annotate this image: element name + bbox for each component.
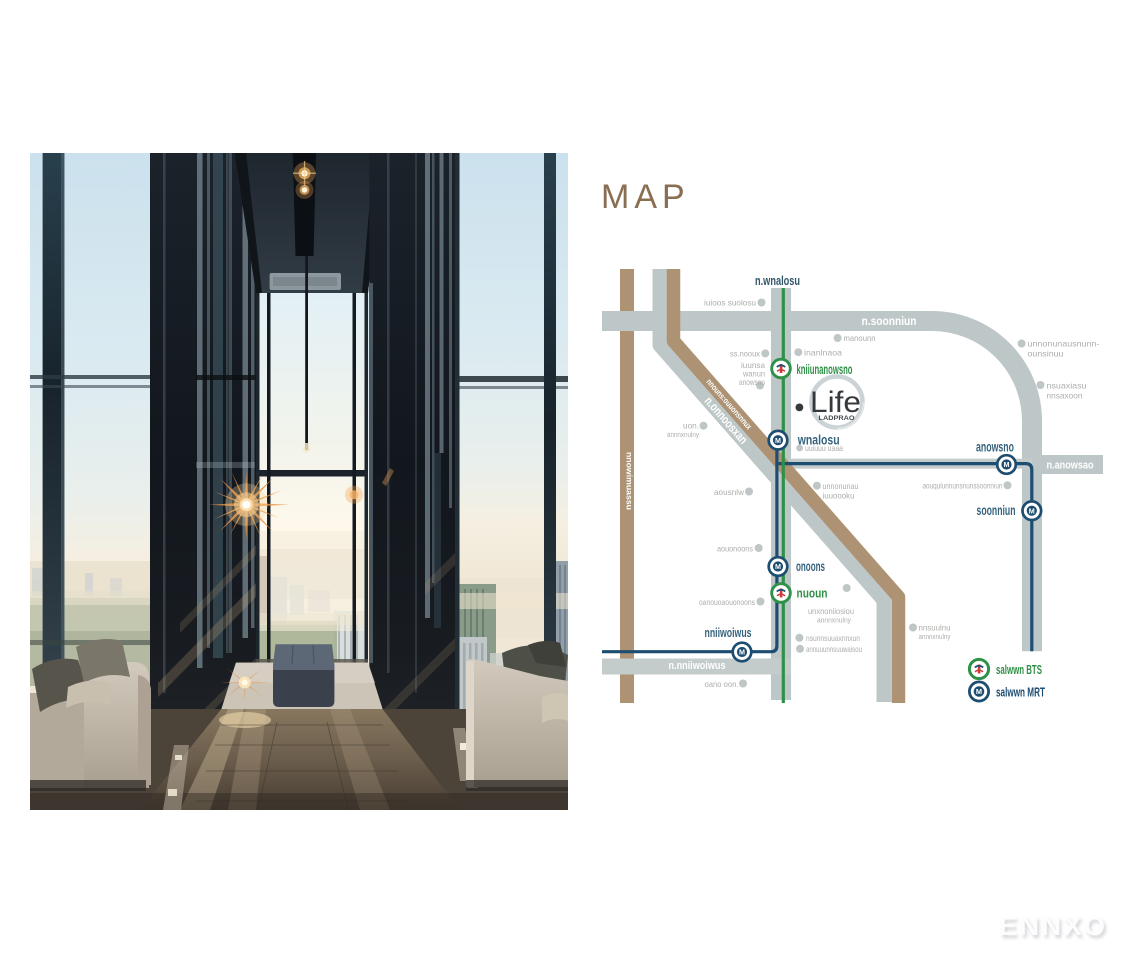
svg-text:annnxnulny: annnxnulny (817, 616, 851, 625)
svg-text:inanlnaoa: inanlnaoa (804, 348, 842, 358)
svg-text:aousnlw: aousnlw (714, 487, 745, 497)
svg-text:n.soonniun: n.soonniun (862, 314, 917, 328)
svg-text:aouonoons: aouonoons (717, 544, 753, 554)
svg-text:oanouoaouonoons: oanouoaouonoons (699, 597, 755, 607)
svg-text:salwwn BTS: salwwn BTS (996, 662, 1042, 677)
svg-text:anowsno: anowsno (739, 377, 765, 387)
svg-text:salwwn MRT: salwwn MRT (996, 685, 1045, 700)
svg-text:oano oon.: oano oon. (705, 679, 739, 689)
svg-text:onoons: onoons (796, 559, 825, 574)
svg-text:ss.nooux: ss.nooux (730, 349, 761, 359)
svg-text:unnonunausnunn-: unnonunausnunn- (1028, 339, 1100, 349)
svg-text:annuuunnsuuwaisou: annuuunnsuuwaisou (806, 644, 862, 654)
svg-text:unxnoniiosiou: unxnoniiosiou (808, 606, 854, 616)
svg-text:wnalosu: wnalosu (797, 433, 840, 448)
svg-text:n.wnalosu: n.wnalosu (755, 274, 800, 288)
svg-text:n.nniiwoiwus: n.nniiwoiwus (669, 660, 726, 672)
svg-text:iuuoooku: iuuoooku (823, 491, 855, 501)
svg-text:nniiwoiwus: nniiwoiwus (705, 625, 752, 640)
svg-text:M: M (739, 648, 745, 657)
svg-text:M: M (976, 687, 982, 696)
svg-text:manounn: manounn (844, 333, 876, 343)
svg-text:unnonunau: unnonunau (823, 481, 859, 491)
svg-text:M: M (775, 436, 781, 445)
svg-text:n.anowsao: n.anowsao (1047, 460, 1094, 472)
svg-text:nuoun: nuoun (797, 586, 828, 601)
svg-text:iuioos suolosu: iuioos suolosu (704, 298, 756, 308)
svg-text:anowsno: anowsno (976, 440, 1014, 455)
svg-text:M: M (1029, 506, 1035, 515)
svg-text:M: M (775, 562, 781, 571)
svg-text:kniiunanowsno: kniiunanowsno (797, 362, 853, 377)
svg-text:soonniun: soonniun (977, 503, 1016, 518)
svg-text:nsuaxiasu: nsuaxiasu (1047, 381, 1087, 391)
svg-text:annnxnulny: annnxnulny (919, 632, 951, 641)
svg-text:ounsinuu: ounsinuu (1028, 349, 1064, 359)
svg-text:nnowimuassu: nnowimuassu (625, 452, 635, 510)
svg-text:uon.: uon. (683, 421, 699, 431)
svg-text:nnsaxoon: nnsaxoon (1047, 391, 1083, 401)
svg-text:nsunnsuuaxnnxun: nsunnsuuaxnnxun (806, 633, 860, 643)
svg-text:annnxnulny: annnxnulny (667, 430, 699, 439)
svg-text:aouqulunnunsnunssoonniun: aouqulunnunsnunssoonniun (923, 481, 1003, 491)
svg-text:LADPRAO: LADPRAO (819, 415, 855, 422)
svg-text:nnsuulnu: nnsuulnu (919, 623, 951, 633)
svg-text:M: M (1004, 460, 1010, 469)
